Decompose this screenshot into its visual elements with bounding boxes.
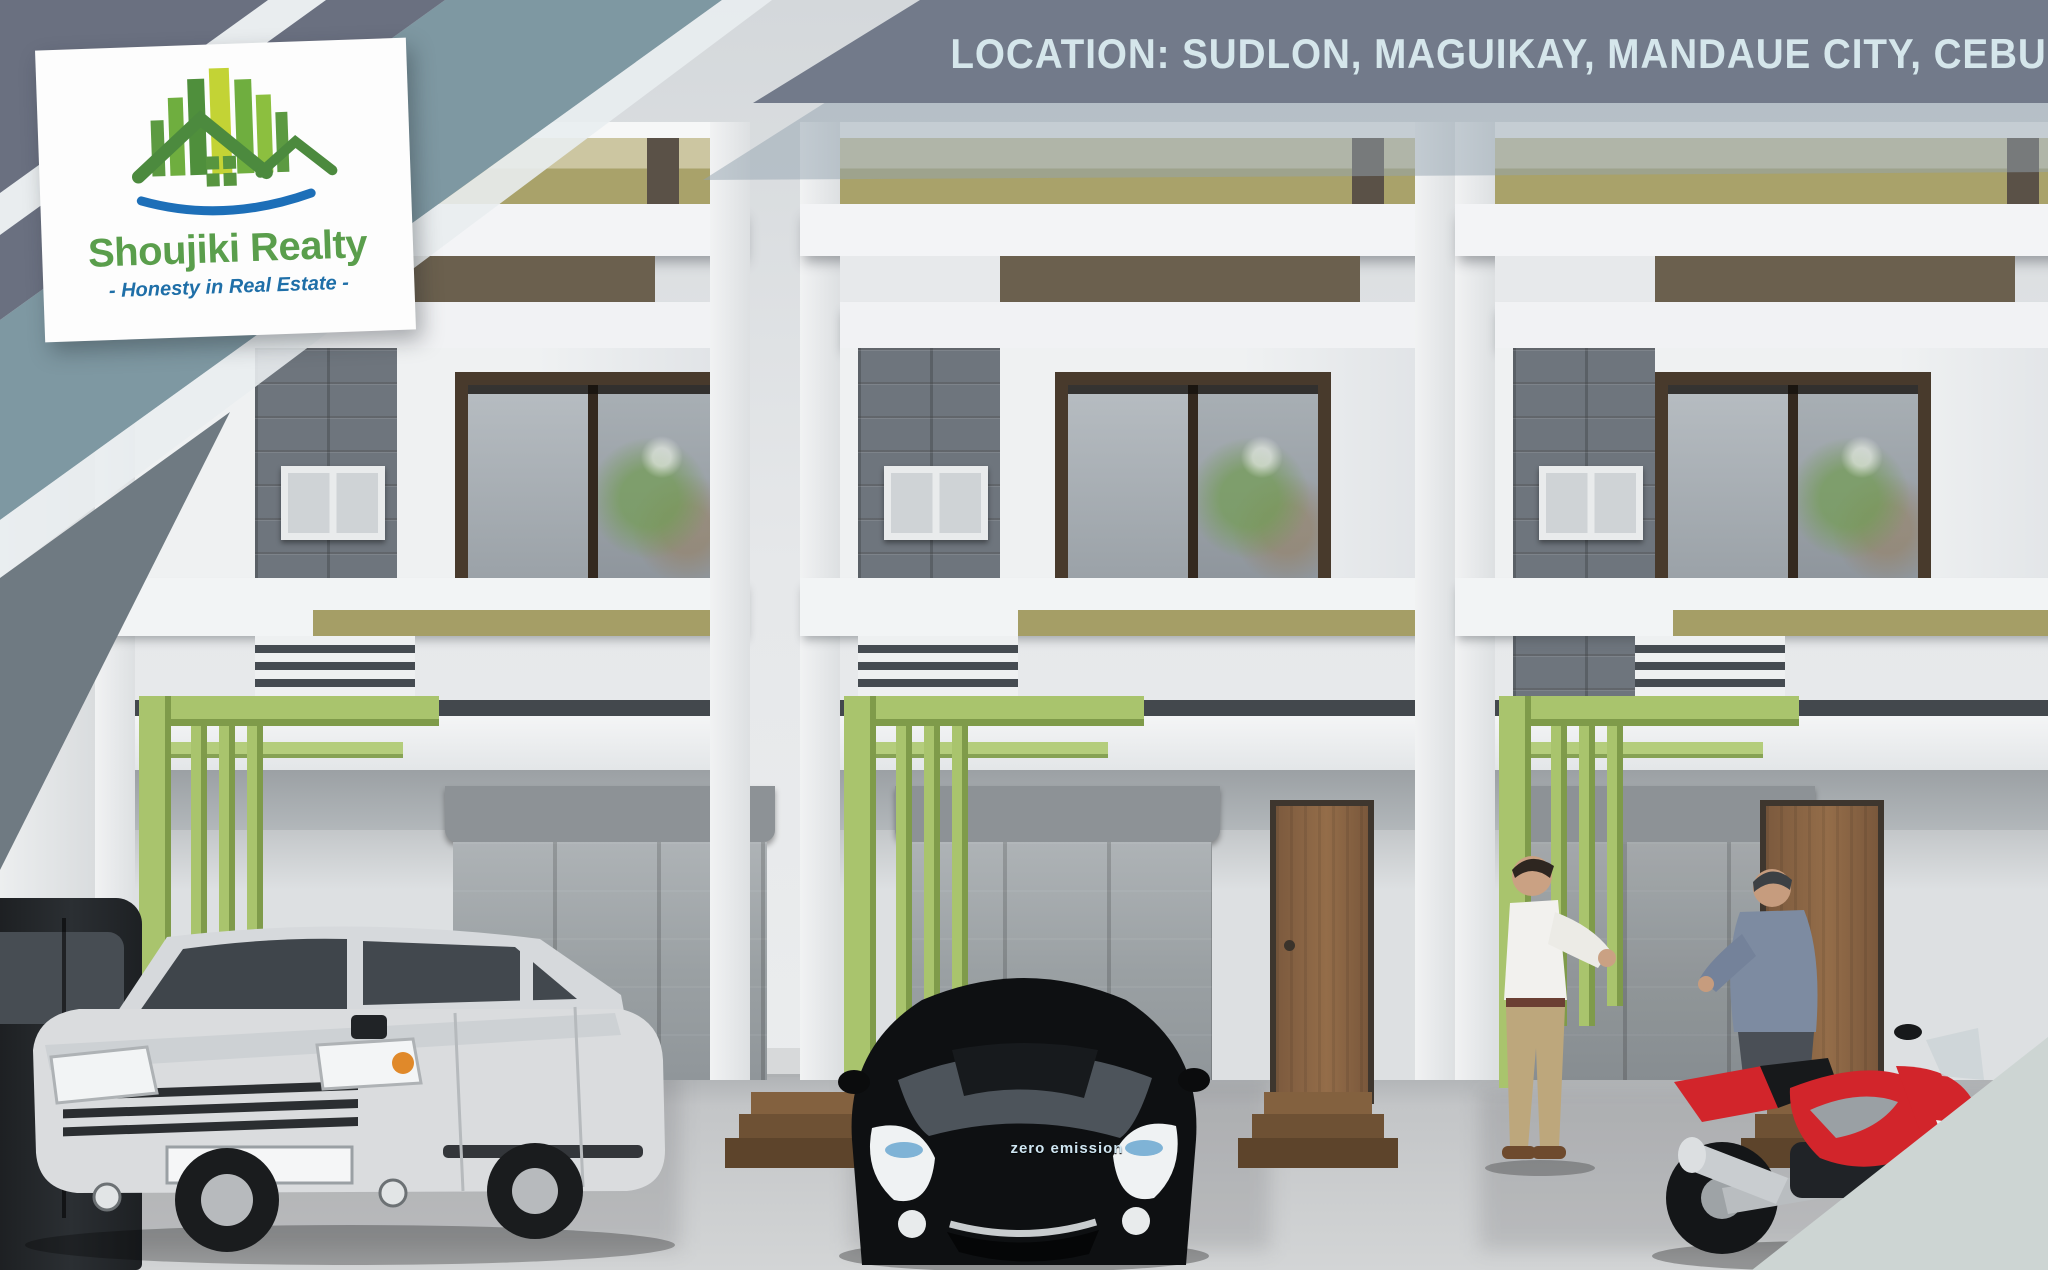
ev-fog-right: [1122, 1207, 1150, 1235]
roofdeck-parapet: [1495, 138, 2048, 204]
suv-pillar: [520, 945, 533, 1005]
balcony-olive-strip: [1018, 610, 1415, 636]
fascia-strip: [1655, 256, 2015, 302]
parapet-accent-strip: [2007, 138, 2039, 204]
window-head-shadow: [1068, 385, 1318, 394]
balcony-olive-strip: [1673, 610, 2048, 636]
ev-mirror-right: [1178, 1068, 1210, 1092]
window-glass: [593, 385, 718, 591]
suv-headlight-left: [51, 1047, 157, 1103]
ledge-slab: [1495, 302, 2048, 348]
person-standing-left: [1470, 848, 1620, 1178]
red-motorcycle: [1640, 970, 2020, 1270]
real-estate-poster: zero emission: [0, 0, 2048, 1270]
balcony-olive-strip: [313, 610, 710, 636]
window-head-shadow: [1668, 385, 1918, 394]
bedroom-window: [1655, 372, 1931, 604]
person-shoe: [1502, 1146, 1536, 1159]
ev-mirror-left: [838, 1070, 870, 1094]
stone-accent-column: [1513, 348, 1655, 730]
small-twin-window: [1539, 466, 1643, 540]
balcony-railing: [858, 636, 1018, 702]
silver-suv: [15, 895, 685, 1265]
parapet-accent-strip: [647, 138, 679, 204]
suv-fog-light: [380, 1180, 406, 1206]
person-pants: [1506, 1007, 1565, 1148]
person-belt: [1506, 998, 1565, 1007]
roller-door-housing: [895, 786, 1220, 842]
soffit: [840, 256, 1000, 302]
pergola-beam: [844, 696, 1144, 726]
bedroom-window: [1055, 372, 1331, 604]
pergola-beam: [1499, 696, 1799, 726]
roof-slab: [800, 204, 1455, 256]
pergola-beam: [139, 696, 439, 726]
bedroom-window: [455, 372, 731, 604]
party-wall: [1415, 122, 1455, 1080]
ev-zero-emission-badge: zero emission: [972, 1140, 1162, 1157]
window-sash: [588, 385, 598, 591]
moto-exhaust-tip: [1678, 1137, 1706, 1173]
moto-mirror: [1894, 1024, 1922, 1040]
suv-mirror: [351, 1015, 387, 1039]
fascia-strip: [1000, 256, 1360, 302]
parapet-cap: [800, 122, 1455, 138]
person-shadow: [1485, 1160, 1595, 1176]
black-ev-car: [832, 930, 1217, 1270]
suv-rear-rim: [512, 1168, 558, 1214]
suv-shadow: [25, 1225, 675, 1265]
small-twin-window: [281, 466, 385, 540]
suv-pillar: [347, 935, 363, 1017]
suv-fog-light: [94, 1184, 120, 1210]
suv-turn-signal: [392, 1052, 414, 1074]
suv-front-rim: [201, 1174, 253, 1226]
ledge-slab: [840, 302, 1415, 348]
ev-projector-left: [885, 1142, 923, 1158]
window-glass: [1193, 385, 1318, 591]
pergola-beam: [139, 742, 403, 758]
parapet-accent-strip: [1352, 138, 1384, 204]
brand-name: Shoujiki Realty: [41, 221, 413, 279]
window-head-shadow: [468, 385, 718, 394]
brand-logo-card: Shoujiki Realty - Honesty in Real Estate…: [35, 38, 416, 343]
entry-steps: [1238, 1092, 1398, 1170]
roof-slab: [1455, 204, 2048, 256]
pergola-beam: [844, 742, 1108, 758]
window-sash: [1788, 385, 1798, 591]
person-hand: [1598, 949, 1616, 967]
entry-door: [1270, 800, 1374, 1104]
small-twin-window: [884, 466, 988, 540]
window-glass: [1793, 385, 1918, 591]
window-sash: [1188, 385, 1198, 591]
roofdeck-parapet: [840, 138, 1415, 204]
balcony-railing: [255, 636, 415, 702]
parapet-cap: [1455, 122, 2048, 138]
balcony-railing: [1635, 636, 1785, 702]
ev-fog-left: [898, 1210, 926, 1238]
pergola-beam: [1499, 742, 1763, 758]
soffit: [1495, 256, 1655, 302]
moto-tail: [1674, 1066, 1778, 1122]
party-wall: [710, 122, 750, 1080]
green-buildings-house-swoosh-icon: [106, 52, 341, 220]
person-shoe: [1532, 1146, 1566, 1159]
